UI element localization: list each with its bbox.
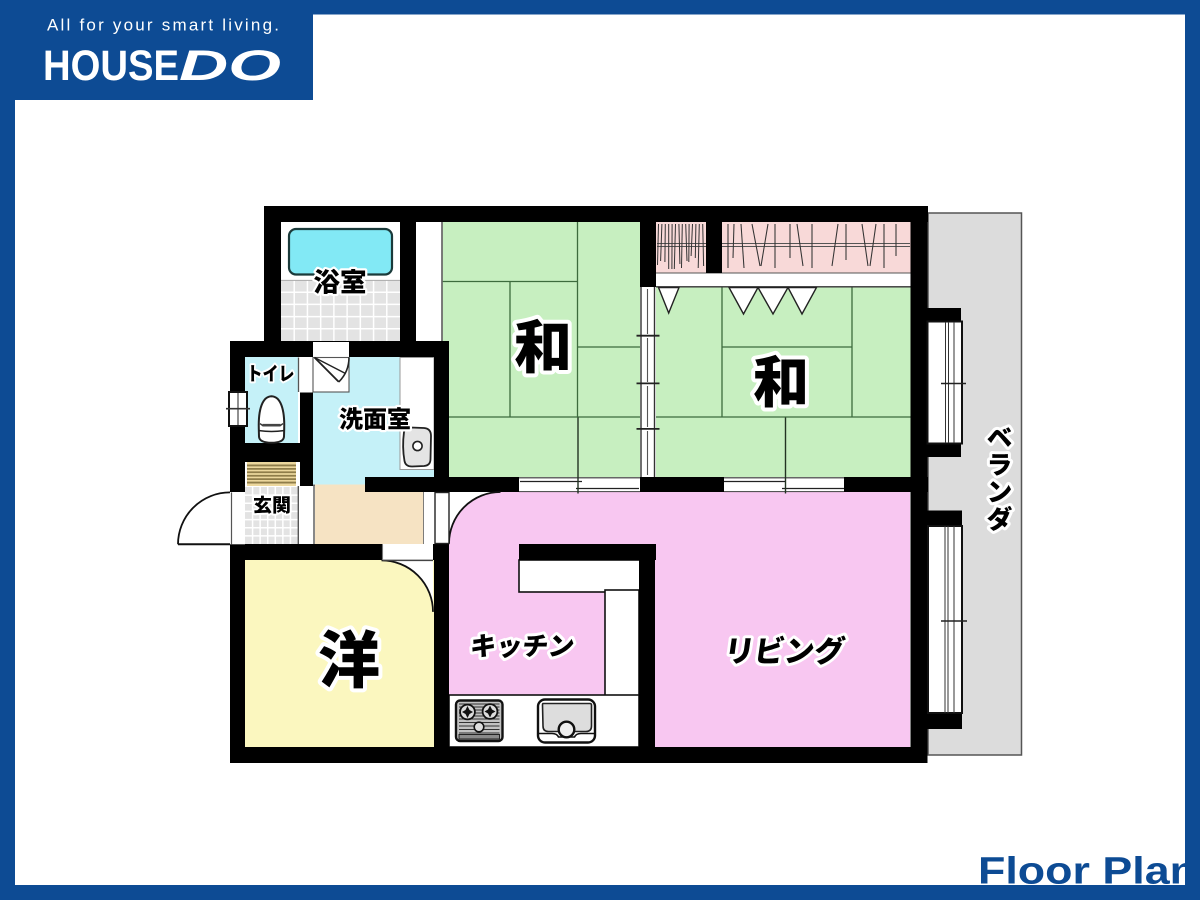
svg-text:DO: DO [179,43,281,90]
svg-text:All for your smart living.: All for your smart living. [47,16,279,35]
svg-text:HOUSE: HOUSE [43,43,179,90]
